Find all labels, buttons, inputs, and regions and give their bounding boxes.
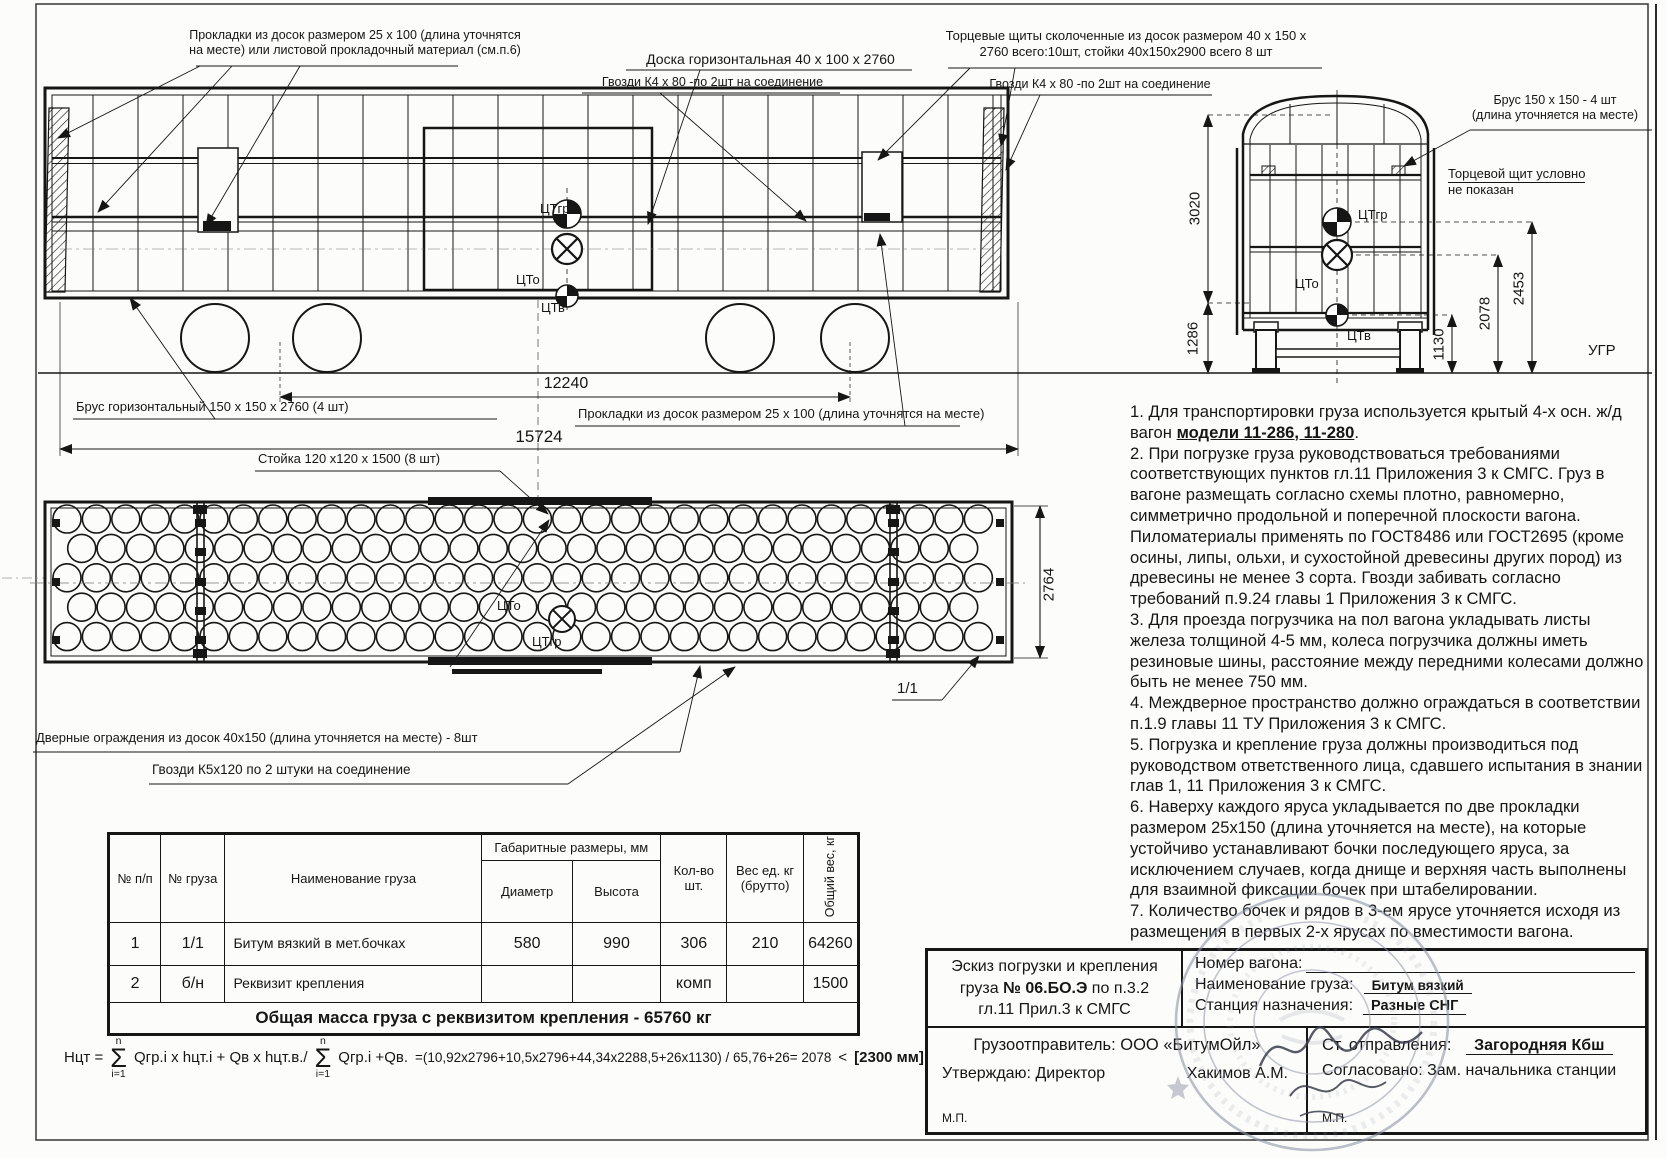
note-6: 6. Наверху каждого яруса укладывается по… <box>1130 797 1645 901</box>
cargo-table: № п/п № груза Наименование груза Габарит… <box>107 832 860 1036</box>
title-block: Эскиз погрузки и крепления груза № 06.БО… <box>925 948 1648 1135</box>
item-mark: 1/1 <box>897 680 918 698</box>
note-1: 1. Для транспортировки груза используетс… <box>1130 402 1645 444</box>
dim-cg-wagon-height: 1130 <box>1431 315 1448 375</box>
center-of-gravity-icon-top <box>549 606 575 632</box>
shipper-cell: Грузоотправитель: ООО «БитумОйл» Утвержд… <box>928 1028 1308 1132</box>
dim-cg-combined-height: 2078 <box>1477 284 1494 344</box>
cg-label-wagon-end: ЦТв <box>1347 328 1371 344</box>
col-header-qty: Кол-во шт. <box>661 834 727 923</box>
top-view <box>2 497 1025 674</box>
dim-cg-cargo-height: 2453 <box>1511 259 1528 319</box>
callout-gaskets-top: Прокладки из досок размером 25 x 100 (дл… <box>186 28 524 59</box>
loading-scheme-sheet: Прокладки из досок размером 25 x 100 (дл… <box>0 0 1667 1158</box>
cg-label-cargo-top: ЦТгр <box>532 634 562 650</box>
seal-place-left: М.П. <box>942 1111 967 1125</box>
sketch-number: № 06.БО.Э <box>1003 980 1087 997</box>
note-end-shield-hidden: Торцевой щит условно не показан <box>1448 166 1585 198</box>
formula-less-sign: < <box>838 1049 847 1066</box>
departure-label: Ст. отправления: <box>1322 1036 1452 1054</box>
note-4: 4. Междверное пространство должно огражд… <box>1130 693 1645 735</box>
col-header-cargo-num: № груза <box>161 834 225 923</box>
cargo-name-value: Битум вязкий <box>1364 978 1472 994</box>
dim-floor-height: 1286 <box>1185 309 1202 369</box>
dim-inner-width: 2764 <box>1041 555 1058 615</box>
col-header-height: Высота <box>572 861 660 923</box>
callout-nails-k5: Гвозди К5х120 по 2 штуки на соединение <box>152 762 411 778</box>
note-7: 7. Количество бочек и рядов в 3-ем ярусе… <box>1130 901 1645 943</box>
cg-label-cargo-end: ЦТгр <box>1358 207 1388 223</box>
callout-nails-k4-right: Гвозди К4 х 80 -по 2шт на соединение <box>985 77 1215 92</box>
barrel-stack <box>53 505 992 651</box>
formula-limit: [2300 мм] <box>854 1049 924 1066</box>
callout-brus-end: Брус 150 x 150 - 4 шт (длина уточняется … <box>1462 93 1648 124</box>
col-header-num: № п/п <box>109 834 161 923</box>
departure-value: Загородняя Кбш <box>1466 1037 1612 1055</box>
total-mass-row: Общая масса груза с реквизитом крепления… <box>109 1002 859 1034</box>
col-header-size-group: Габаритные размеры, мм <box>482 834 661 861</box>
cg-label-wagon-side: ЦТв <box>541 300 565 316</box>
col-header-name: Наименование груза <box>225 834 482 923</box>
cg-height-formula: Нцт = n Σ i=1 Qгр.i x hцт.i + Qв x hцт.в… <box>64 1036 924 1080</box>
seal-place-right: М.П. <box>1322 1111 1347 1125</box>
note-5: 5. Погрузка и крепление груза должны про… <box>1130 735 1645 797</box>
callout-stanchion: Стойка 120 х120 х 1500 (8 шт) <box>258 451 440 467</box>
agreed-line: Согласовано: Зам. начальника станции <box>1322 1062 1639 1080</box>
formula-calculation: =(10,92x2796+10,5x2796+44,34x2288,5+26x1… <box>415 1050 831 1065</box>
table-row: 1 1/1 Битум вязкий в мет.бочках 580 990 … <box>109 922 859 965</box>
formula-term2: Qгр.i +Qв. <box>338 1049 408 1066</box>
sum-icon: n Σ i=1 <box>110 1036 127 1080</box>
note-3: 3. Для проезда погрузчика на пол вагона … <box>1130 610 1645 693</box>
end-view <box>1237 90 1434 386</box>
col-header-diameter: Диаметр <box>482 861 572 923</box>
cargo-name-label: Наименование груза: <box>1195 976 1354 994</box>
wagon-number-label: Номер вагона: <box>1195 955 1302 973</box>
callout-end-shields: Торцевые щиты сколоченные из досок разме… <box>930 28 1322 60</box>
destination-label: Станция назначения: <box>1195 997 1353 1015</box>
dim-inner-height: 3020 <box>1187 179 1204 239</box>
wagon-number-blank <box>1306 958 1635 973</box>
callout-brus-horizontal: Брус горизонтальный 150 x 150 x 2760 (4 … <box>76 399 349 415</box>
wagon-info-cell: Номер вагона: Наименование груза: Битум … <box>1183 951 1645 1026</box>
cg-label-combined-top: ЦТо <box>497 598 521 614</box>
rail-level-label: УГР <box>1588 342 1616 360</box>
callout-nails-k4-left: Гвозди К4 х 80 -по 2шт на соединение <box>585 75 840 90</box>
cg-label-combined-side: ЦТо <box>516 272 540 288</box>
callout-gaskets-bottom: Прокладки из досок размером 25 x 100 (дл… <box>578 406 984 422</box>
dim-overall-length: 15724 <box>489 427 589 448</box>
approver-name: Хакимов А.М. <box>1187 1065 1288 1083</box>
formula-lhs: Нцт = <box>64 1049 103 1066</box>
callout-door-guards: Дверные ограждения из досок 40х150 (длин… <box>36 730 478 746</box>
col-header-unit-weight: Вес ед. кг (брутто) <box>727 834 803 923</box>
table-row: 2 б/н Реквизит крепления комп 1500 <box>109 965 859 1002</box>
approve-label: Утверждаю: Директор <box>942 1065 1105 1083</box>
cg-label-cargo-side: ЦТгр <box>540 201 570 217</box>
formula-term1: Qгр.i x hцт.i + Qв x hцт.в./ <box>134 1049 308 1066</box>
destination-value: Разные СНГ <box>1363 998 1466 1015</box>
callout-board-horizontal: Доска горизонтальная 40 x 100 x 2760 <box>628 51 913 68</box>
loading-notes: 1. Для транспортировки груза используетс… <box>1130 402 1645 943</box>
cg-label-combined-end: ЦТо <box>1295 276 1319 292</box>
sum-icon: n Σ i=1 <box>315 1036 332 1080</box>
col-header-total-weight: Общий вес, кг <box>803 834 858 923</box>
dim-wheel-base: 12240 <box>516 374 616 394</box>
note-2: 2. При погрузке груза руководствоваться … <box>1130 444 1645 610</box>
station-cell: Ст. отправления: Загородняя Кбш Согласов… <box>1308 1028 1645 1132</box>
sketch-number-cell: Эскиз погрузки и крепления груза № 06.БО… <box>928 951 1183 1026</box>
shipper: Грузоотправитель: ООО «БитумОйл» <box>928 1036 1306 1055</box>
